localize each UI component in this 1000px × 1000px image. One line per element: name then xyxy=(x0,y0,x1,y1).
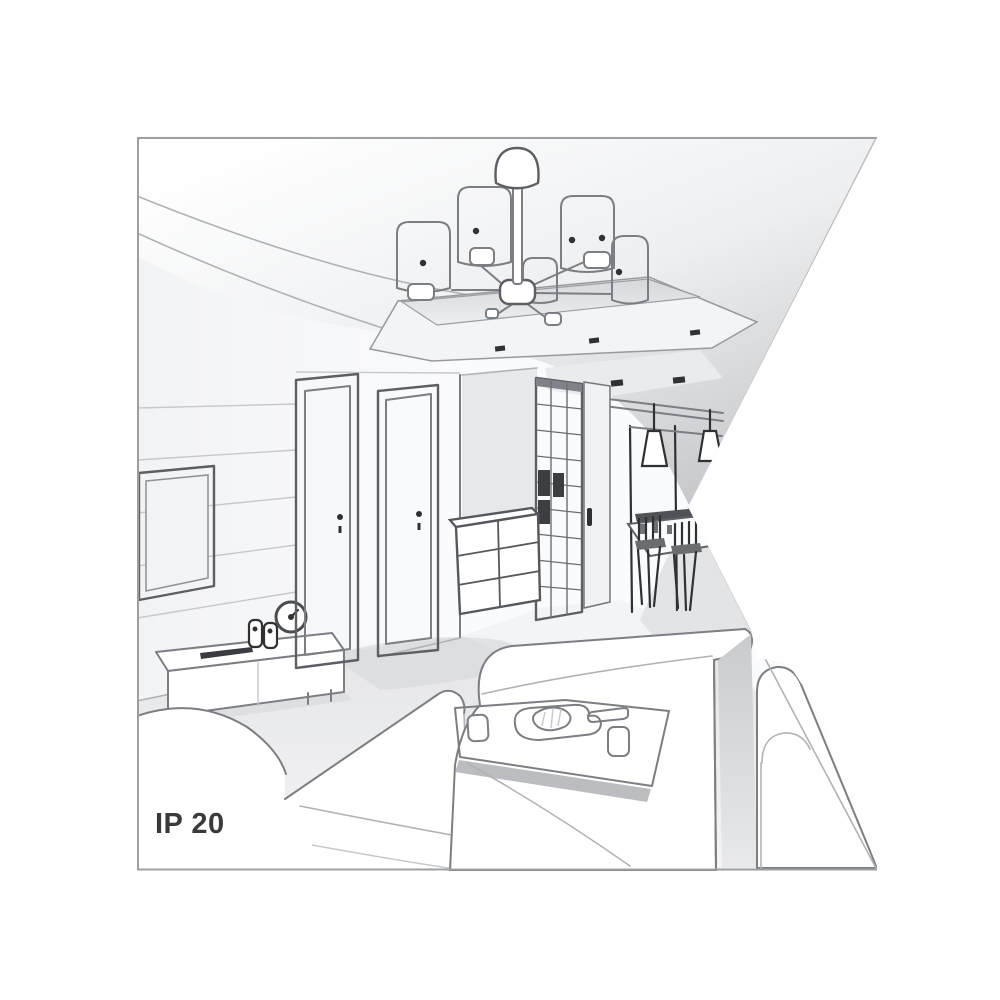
hallway-door xyxy=(584,382,610,608)
sofa-side-face xyxy=(718,634,757,868)
door-handle-icon xyxy=(587,508,592,526)
clock-icon xyxy=(276,602,306,632)
sofa-right xyxy=(751,632,877,870)
cup xyxy=(467,714,488,741)
door-handle-icon xyxy=(416,511,422,517)
drawer-chest xyxy=(450,508,540,614)
sofa-center xyxy=(450,629,757,871)
tv-screen xyxy=(146,475,208,591)
chandelier-stem xyxy=(513,177,522,284)
chandelier-canopy xyxy=(495,148,538,188)
table-item xyxy=(640,524,645,534)
table-item xyxy=(667,525,672,534)
spotlight-icon xyxy=(673,376,686,383)
wardrobe-dark-panel xyxy=(538,470,550,496)
wardrobe-dark-panel xyxy=(553,473,564,497)
product-illustration: IP 20 xyxy=(0,0,1000,1000)
door-handle-icon xyxy=(337,514,343,520)
room-illustration: IP 20 xyxy=(0,0,1000,1000)
wardrobe-dark-panel xyxy=(538,500,550,524)
cup xyxy=(608,727,629,756)
speakers xyxy=(249,620,277,648)
spotlight-icon xyxy=(611,379,624,386)
ip-rating-label: IP 20 xyxy=(155,808,225,840)
